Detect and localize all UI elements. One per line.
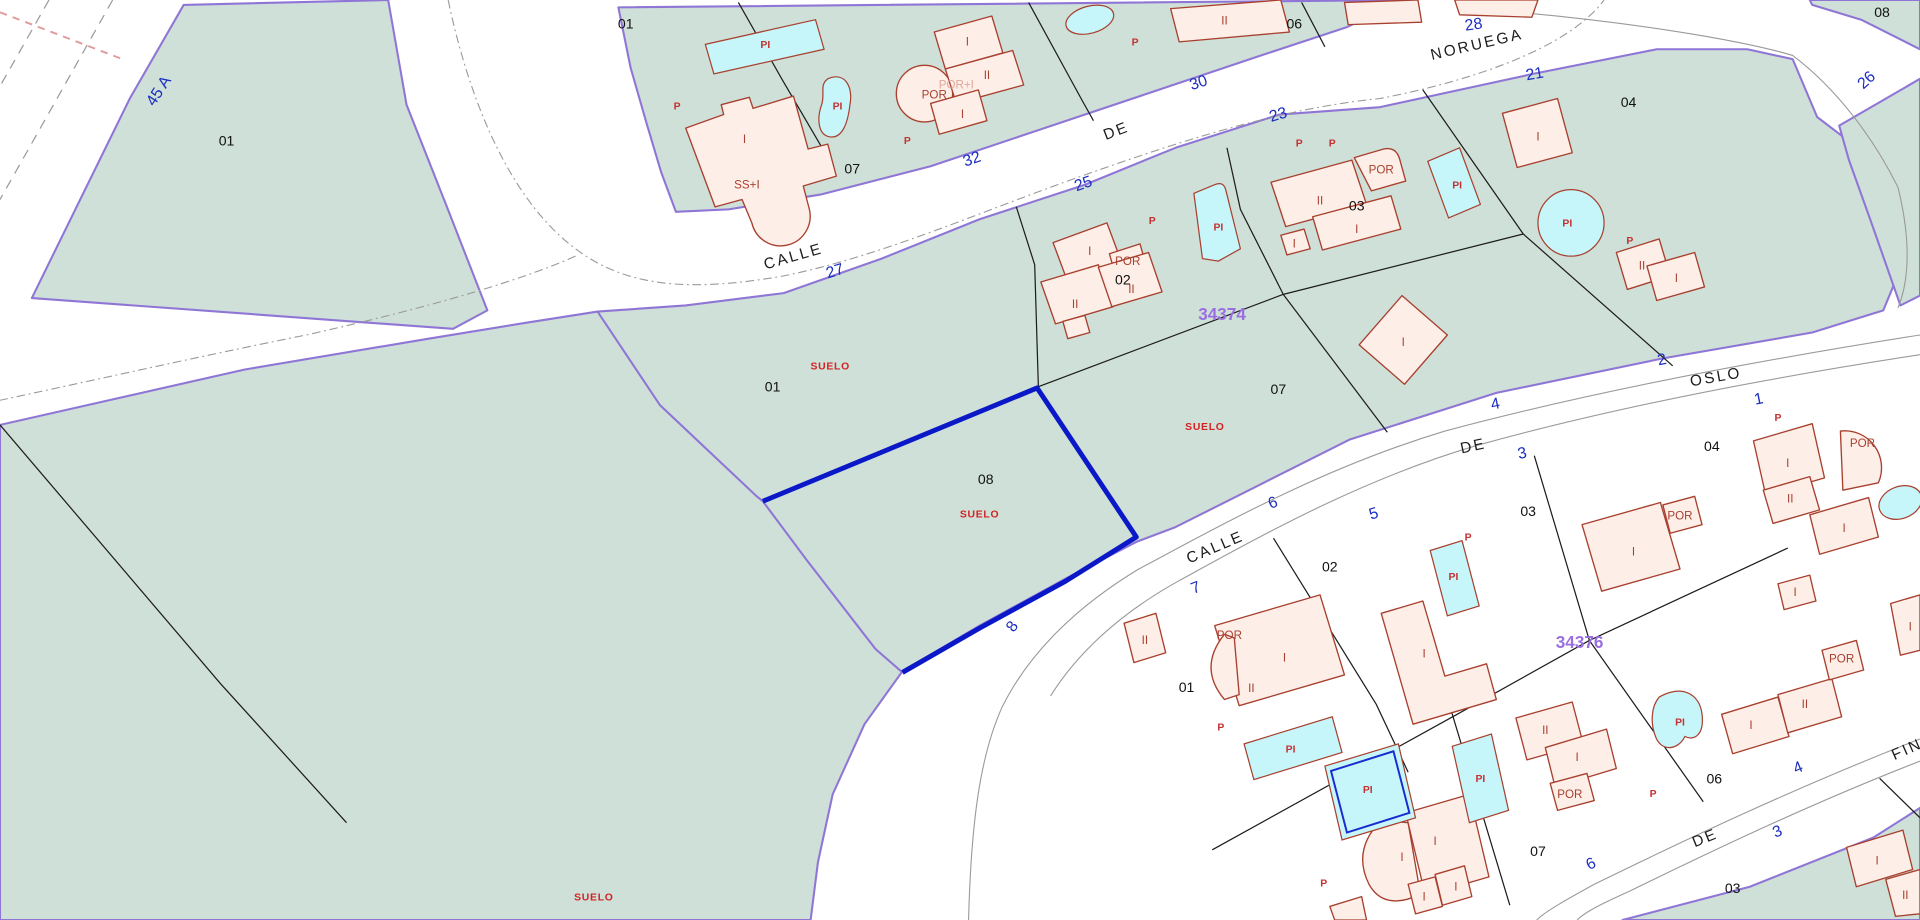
- p-label: P: [1320, 879, 1327, 890]
- parcel-number: 04: [1704, 438, 1720, 454]
- building-label: I: [966, 36, 969, 49]
- building-label: II: [1802, 698, 1808, 711]
- suelo-label: SUELO: [1185, 422, 1224, 433]
- building-label: I: [1675, 272, 1678, 285]
- parcel-number: 08: [978, 471, 994, 487]
- parcel-number: 07: [1530, 843, 1546, 859]
- pool-label: PI: [1562, 219, 1572, 230]
- building-label: I: [1422, 648, 1425, 661]
- pool-label: PI: [1363, 785, 1373, 796]
- building-label: II: [1142, 634, 1148, 647]
- building-label: II: [1317, 194, 1323, 207]
- p-label: P: [1650, 789, 1657, 800]
- street-number: 21: [1525, 64, 1545, 84]
- parcel-number: 02: [1322, 558, 1338, 574]
- p-label: P: [1774, 413, 1781, 424]
- parcel-number: 01: [219, 132, 235, 148]
- building: [1455, 0, 1538, 17]
- building-label: I: [1088, 245, 1091, 258]
- building-label: I: [1842, 522, 1845, 535]
- building-label: POR: [1829, 653, 1854, 666]
- building-label: II: [1542, 724, 1548, 737]
- pool-label: PI: [1452, 180, 1462, 191]
- pool-label: PI: [1286, 744, 1296, 755]
- building-label: POR: [1850, 437, 1875, 450]
- building-label: I: [1400, 851, 1403, 864]
- building-label: I: [1293, 238, 1296, 251]
- building-label: I: [1793, 586, 1796, 599]
- suelo-label: SUELO: [960, 509, 999, 520]
- p-label: P: [1217, 722, 1224, 733]
- block-number: 34374: [1198, 304, 1246, 324]
- building-label: POR: [1557, 788, 1582, 801]
- building-label: I: [1576, 751, 1579, 764]
- building-label: II: [1902, 889, 1908, 902]
- p-label: P: [1329, 139, 1336, 150]
- parcel-number: 01: [765, 379, 781, 395]
- building-label-light: POR+I: [939, 79, 974, 92]
- parcel-number: 08: [1874, 4, 1890, 20]
- building-label: I: [1355, 223, 1358, 236]
- building-label: I: [1876, 855, 1879, 868]
- p-label: P: [1296, 139, 1303, 150]
- building-label: I: [1454, 880, 1457, 893]
- building-label: II: [984, 69, 990, 82]
- building-label: I: [1283, 651, 1286, 664]
- pool-label: PI: [1675, 717, 1685, 728]
- pool-label: PI: [1475, 774, 1485, 785]
- building-label: II: [1221, 15, 1227, 28]
- building-label: POR: [1217, 629, 1242, 642]
- pool-label: PI: [833, 102, 843, 113]
- p-label: P: [1626, 236, 1633, 247]
- pool-label: PI: [1213, 222, 1223, 233]
- building-label: I: [961, 108, 964, 121]
- building-label: II: [1128, 283, 1134, 296]
- parcel-number: 03: [1349, 198, 1365, 214]
- building-label: POR: [1369, 164, 1394, 177]
- building-label: I: [1909, 621, 1912, 634]
- parcel-number: 07: [1271, 381, 1287, 397]
- building-label: I: [1749, 719, 1752, 732]
- building-label: II: [1248, 682, 1254, 695]
- street-number: 28: [1464, 15, 1484, 34]
- building-label: POR: [1667, 510, 1692, 523]
- pool-label: PI: [1449, 572, 1459, 583]
- building-label: I: [1422, 890, 1425, 903]
- p-label: P: [1465, 533, 1472, 544]
- building-label: I: [1786, 457, 1789, 470]
- parcel-number: 03: [1520, 503, 1536, 519]
- building-label: I: [1433, 835, 1436, 848]
- parcel-number: 06: [1286, 15, 1302, 31]
- parcel-number: 01: [1179, 679, 1195, 695]
- building-label: POR: [1115, 255, 1140, 268]
- building-label: I: [743, 133, 746, 146]
- building-label: II: [1072, 298, 1078, 311]
- p-label: P: [1132, 38, 1139, 49]
- p-label: P: [1149, 216, 1156, 227]
- suelo-label: SUELO: [810, 361, 849, 372]
- pool-label: PI: [760, 40, 770, 51]
- block-number: 34376: [1556, 632, 1604, 652]
- building-label: SS+I: [734, 178, 760, 191]
- building-label: II: [1639, 260, 1645, 273]
- parcel-number: 07: [844, 161, 860, 177]
- building-label: I: [1536, 130, 1539, 143]
- p-label: P: [674, 102, 681, 113]
- parcel-number: 06: [1706, 770, 1722, 786]
- building-label: I: [1632, 545, 1635, 558]
- suelo-label: SUELO: [574, 892, 613, 903]
- building-label: II: [1787, 492, 1793, 505]
- parcel-number: 03: [1725, 880, 1741, 896]
- p-label: P: [904, 136, 911, 147]
- cadastral-map-canvas[interactable]: CALLEDENORUEGAOSLODECALLEDEFIN45 A273225…: [0, 0, 1920, 920]
- parcel-number: 01: [618, 15, 634, 31]
- parcel-number: 04: [1621, 94, 1637, 110]
- building: [1344, 0, 1421, 25]
- building-label: I: [1402, 336, 1405, 349]
